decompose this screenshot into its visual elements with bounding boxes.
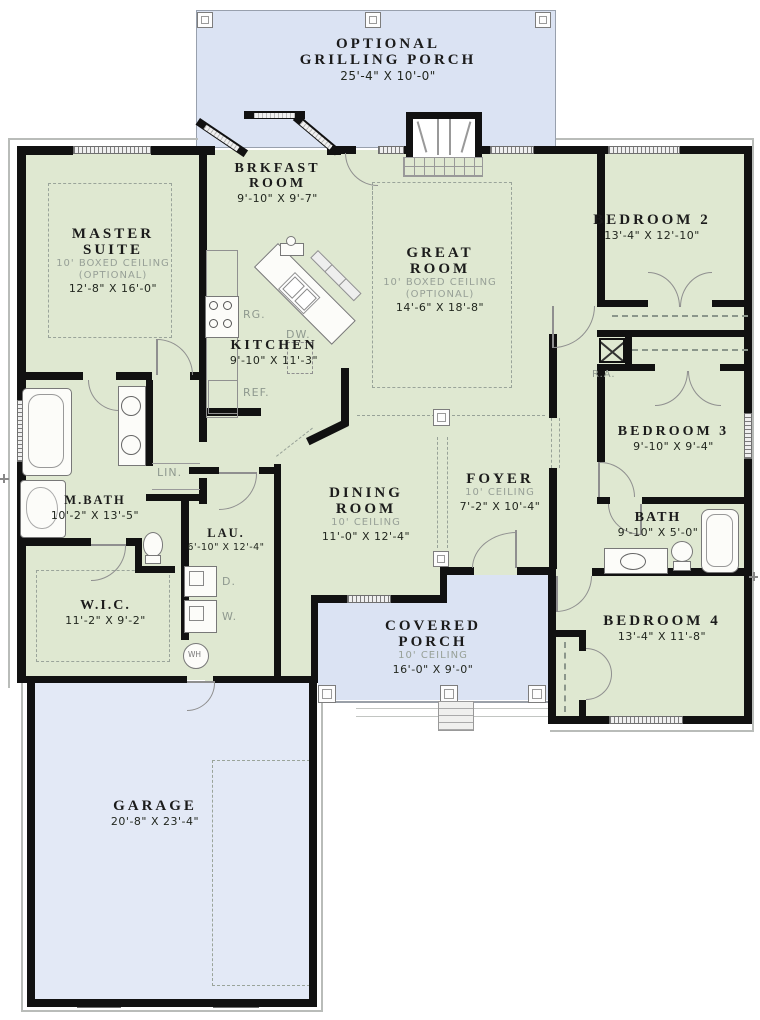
- covered-porch-area-step: [447, 575, 548, 605]
- room-name: ROOM: [205, 176, 350, 191]
- trim-line: [21, 1010, 323, 1012]
- room-name: BEDROOM 2: [572, 212, 732, 228]
- ceiling-note: 10' CEILING: [296, 517, 436, 529]
- room-dims: 12'-8" X 16'-0": [33, 282, 193, 295]
- wall: [17, 538, 91, 546]
- door-leaf: [598, 462, 600, 497]
- trim-line: [21, 678, 23, 1012]
- room-name: OPTIONAL: [238, 36, 538, 52]
- firebox-line: [417, 121, 427, 152]
- window: [378, 146, 406, 154]
- wall: [548, 575, 556, 723]
- trim-line: [550, 730, 754, 732]
- room-name: LAU.: [181, 527, 271, 541]
- door-leaf: [552, 306, 554, 348]
- wall: [17, 676, 187, 683]
- room-dims: 14'-6" X 18'-8": [370, 301, 510, 314]
- dimension-tick: [0, 478, 9, 480]
- trim-line: [8, 138, 198, 140]
- wall: [720, 364, 752, 371]
- porch-column-inner: [444, 689, 454, 699]
- porch-column-inner: [201, 16, 209, 24]
- room-dims: 9'-10" X 9'-4": [596, 440, 751, 453]
- room-dims: 9'-10" X 5'-0": [588, 526, 728, 539]
- vanity-double: [118, 386, 146, 466]
- porch-column: [365, 12, 381, 28]
- room-label-bath: BATH 9'-10" X 5'-0": [588, 510, 728, 539]
- window: [73, 146, 151, 154]
- room-name: GARAGE: [80, 798, 230, 814]
- foyer-column: [433, 551, 449, 567]
- wall: [126, 538, 140, 546]
- wall: [625, 337, 632, 364]
- door-leaf: [219, 472, 257, 474]
- wall: [146, 380, 153, 466]
- room-label-great-room: GREAT ROOM 10' BOXED CEILING (OPTIONAL) …: [370, 245, 510, 314]
- room-name: FOYER: [440, 471, 560, 487]
- dimension-tick: [753, 572, 755, 581]
- linen-shelf-line: [152, 489, 200, 490]
- ceiling-note: (OPTIONAL): [370, 289, 510, 301]
- wall: [517, 567, 550, 575]
- trim-line: [752, 138, 754, 732]
- wall: [311, 602, 318, 683]
- firebox-line: [461, 121, 471, 152]
- refrigerator: [208, 380, 238, 414]
- range: [205, 296, 239, 338]
- sink: [121, 435, 141, 455]
- porch-column: [197, 12, 213, 28]
- wall: [135, 566, 175, 573]
- fireplace: [406, 112, 482, 157]
- room-dims: 13'-4" X 11'-8": [577, 630, 747, 643]
- window: [490, 146, 534, 154]
- foyer-column: [433, 409, 450, 426]
- toilet: [143, 532, 163, 557]
- floor-plan: OPTIONAL GRILLING PORCH 25'-4" X 10'-0" …: [0, 0, 760, 1020]
- wall: [189, 467, 219, 474]
- garage-storage-outline: [212, 760, 310, 986]
- ceiling-note: 10' BOXED CEILING: [33, 258, 193, 270]
- wall: [199, 478, 207, 504]
- opening-dashed: [437, 437, 438, 548]
- window: [608, 146, 680, 154]
- foyer-column-inner: [437, 555, 445, 563]
- wall: [391, 595, 447, 603]
- room-name: M.BATH: [25, 494, 165, 508]
- room-label-mbath: M.BATH 10'-2" X 13'-5": [25, 494, 165, 522]
- room-name: SUITE: [33, 242, 193, 258]
- burner: [209, 301, 218, 310]
- door-leaf: [156, 339, 158, 375]
- wall: [17, 146, 73, 155]
- burner: [223, 319, 232, 328]
- window: [609, 716, 683, 724]
- opening-dashed: [551, 418, 552, 468]
- dimension-tick: [3, 474, 5, 483]
- closet-rod: [612, 315, 748, 317]
- porch-steps: [438, 701, 474, 731]
- porch-column-inner: [532, 689, 542, 699]
- room-label-kitchen: KITCHEN 9'-10" X 11'-3": [204, 338, 344, 367]
- sink: [620, 553, 646, 570]
- ceiling-note: 10' CEILING: [440, 487, 560, 499]
- room-dims: 13'-4" X 12'-10": [572, 229, 732, 242]
- room-name: GRILLING PORCH: [238, 52, 538, 68]
- wall: [213, 676, 316, 683]
- wall: [116, 372, 152, 380]
- closet-rod: [632, 349, 748, 351]
- room-dims: 25'-4" X 10'-0": [238, 69, 538, 83]
- bathtub: [22, 388, 72, 476]
- label-refrigerator: REF.: [243, 386, 270, 399]
- door-leaf: [187, 681, 215, 683]
- porch-column-inner: [322, 689, 332, 699]
- burner: [209, 319, 218, 328]
- washer: [184, 600, 217, 633]
- room-dims: 9'-10" X 9'-7": [205, 192, 350, 205]
- porch-column-inner: [539, 16, 547, 24]
- bath-vanity: [604, 548, 668, 574]
- room-name: MASTER: [33, 226, 193, 242]
- toilet-tank: [145, 555, 161, 564]
- dryer-inner: [189, 571, 204, 586]
- foyer-column-inner: [437, 413, 446, 422]
- room-dims: 7'-2" X 10'-4": [440, 500, 560, 513]
- porch-edge-line: [318, 701, 548, 703]
- porch-column: [528, 685, 546, 703]
- wall: [27, 999, 317, 1007]
- wall: [597, 300, 648, 307]
- room-label-bedroom3: BEDROOM 3 9'-10" X 9'-4": [596, 424, 751, 453]
- wall: [579, 700, 586, 716]
- room-name: PORCH: [358, 634, 508, 650]
- label-return-air: R.A.: [592, 369, 616, 380]
- room-name: BEDROOM 4: [577, 613, 747, 629]
- wall: [548, 716, 609, 724]
- label-linen: LIN.: [157, 466, 182, 479]
- label-dryer: D.: [222, 575, 236, 588]
- wall: [744, 154, 752, 413]
- wall: [341, 368, 349, 425]
- door-leaf: [556, 576, 558, 612]
- room-label-covered-porch: COVERED PORCH 10' CEILING 16'-0" X 9'-0": [358, 618, 508, 676]
- wall: [309, 683, 317, 1007]
- trim-line: [321, 700, 323, 1012]
- room-label-grilling-porch: OPTIONAL GRILLING PORCH 25'-4" X 10'-0": [238, 36, 538, 83]
- room-label-bedroom2: BEDROOM 2 13'-4" X 12'-10": [572, 212, 732, 242]
- opening-dashed: [559, 418, 560, 468]
- island-appliance-knob: [286, 236, 296, 246]
- porch-column: [318, 685, 336, 703]
- dryer: [184, 566, 217, 597]
- wall: [680, 146, 752, 154]
- wall: [597, 497, 610, 504]
- bathtub-inner: [28, 394, 64, 468]
- wall: [642, 497, 752, 504]
- ceiling-note: 10' CEILING: [358, 650, 508, 662]
- label-dishwasher: DW.: [286, 328, 311, 341]
- room-dims: 6'-10" X 12'-4": [181, 542, 271, 553]
- toilet-tank: [673, 561, 691, 571]
- burner: [223, 301, 232, 310]
- door-leaf: [515, 530, 517, 568]
- room-name: BRKFAST: [205, 161, 350, 176]
- room-label-garage: GARAGE 20'-8" X 23'-4": [80, 798, 230, 828]
- room-name: BATH: [588, 510, 728, 525]
- room-dims: 11'-0" X 12'-4": [296, 530, 436, 543]
- wall: [17, 155, 26, 400]
- room-name: W.I.C.: [33, 598, 178, 613]
- closet-rod: [564, 642, 566, 712]
- room-label-wic: W.I.C. 11'-2" X 9'-2": [33, 598, 178, 627]
- room-label-brkfast: BRKFAST ROOM 9'-10" X 9'-7": [205, 161, 350, 205]
- firebox-line: [449, 119, 451, 155]
- wall: [712, 300, 752, 307]
- ceiling-note: 10' BOXED CEILING: [370, 277, 510, 289]
- porch-column: [535, 12, 551, 28]
- room-label-lau: LAU. 6'-10" X 12'-4": [181, 527, 271, 553]
- label-range: RG.: [243, 308, 266, 321]
- window: [347, 595, 391, 603]
- hearth: [403, 157, 483, 177]
- return-air-chase: [599, 338, 625, 363]
- room-name: KITCHEN: [204, 338, 344, 353]
- trim-line: [8, 140, 10, 688]
- room-dims: 9'-10" X 11'-3": [204, 354, 344, 367]
- wall: [27, 683, 35, 1007]
- room-dims: 16'-0" X 9'-0": [358, 663, 508, 676]
- room-label-foyer: FOYER 10' CEILING 7'-2" X 10'-4": [440, 471, 560, 513]
- room-name: ROOM: [296, 501, 436, 517]
- room-name: COVERED: [358, 618, 508, 634]
- washer-inner: [189, 606, 204, 621]
- sink: [121, 396, 141, 416]
- wall: [274, 464, 281, 683]
- wall: [597, 330, 752, 337]
- wall: [17, 372, 83, 380]
- ceiling-note: (OPTIONAL): [33, 270, 193, 282]
- room-name: ROOM: [370, 261, 510, 277]
- opening-dashed: [357, 415, 545, 416]
- window: [254, 113, 295, 118]
- room-dims: 20'-8" X 23'-4": [80, 815, 230, 828]
- door-leaf: [91, 544, 126, 546]
- room-dims: 10'-2" X 13'-5": [25, 509, 165, 522]
- label-washer: W.: [222, 610, 237, 623]
- firebox-line: [437, 119, 439, 155]
- room-label-dining: DINING ROOM 10' CEILING 11'-0" X 12'-4": [296, 485, 436, 543]
- room-dims: 11'-2" X 9'-2": [33, 614, 178, 627]
- trim-line: [556, 138, 754, 140]
- label-water-heater: WH: [188, 650, 201, 659]
- room-name: DINING: [296, 485, 436, 501]
- room-label-master-suite: MASTER SUITE 10' BOXED CEILING (OPTIONAL…: [33, 226, 193, 295]
- linen-shelf-line: [152, 463, 200, 464]
- room-label-bedroom4: BEDROOM 4 13'-4" X 11'-8": [577, 613, 747, 643]
- room-name: GREAT: [370, 245, 510, 261]
- room-name: BEDROOM 3: [596, 424, 751, 439]
- toilet: [671, 541, 693, 562]
- wall: [683, 716, 752, 724]
- porch-column-inner: [369, 16, 377, 24]
